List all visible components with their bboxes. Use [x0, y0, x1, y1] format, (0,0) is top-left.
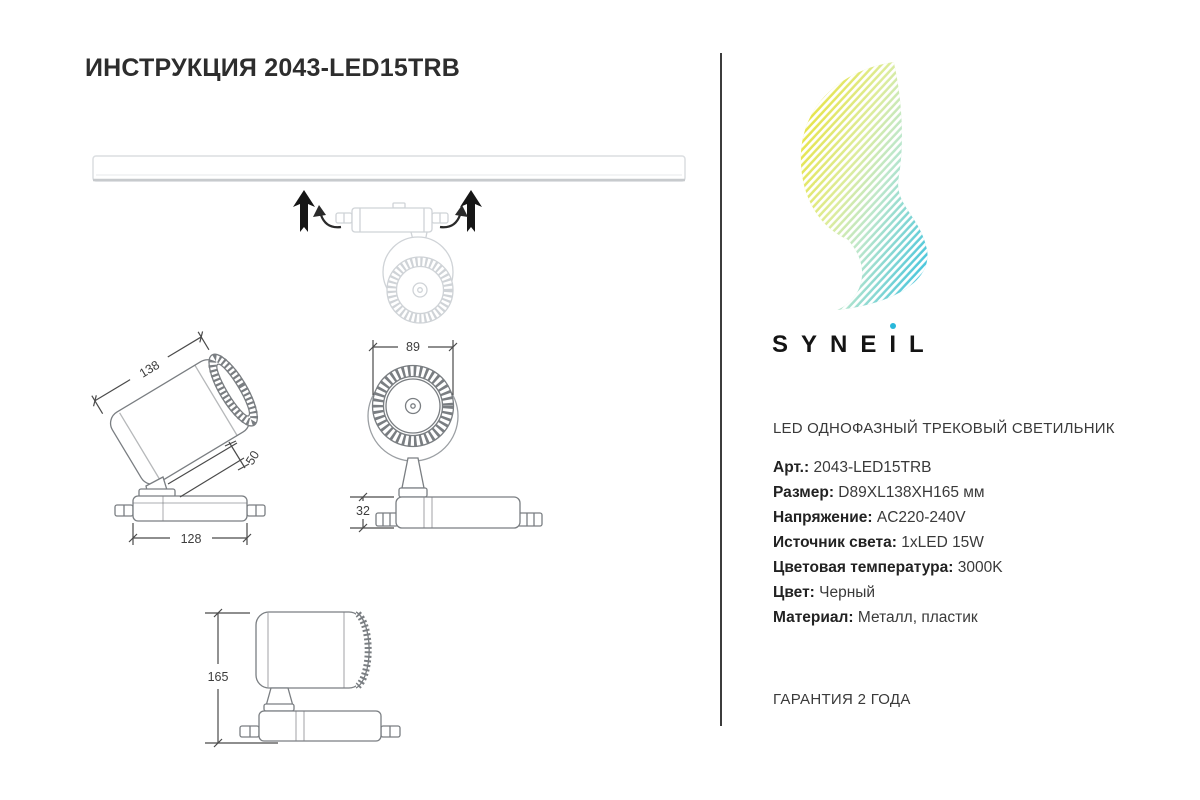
- spec-row-voltage: Напряжение: AC220-240V: [773, 505, 1003, 530]
- spec-label: Арт.:: [773, 459, 809, 476]
- dim-label-length: 138: [137, 358, 162, 381]
- side-view-upright: 165: [205, 609, 400, 747]
- dim-label-height: 165: [208, 670, 229, 684]
- dim-label-stem: 50: [243, 448, 262, 467]
- spec-list: Арт.: 2043-LED15TRB Размер: D89XL138XH16…: [773, 455, 1003, 630]
- product-type: LED ОДНОФАЗНЫЙ ТРЕКОВЫЙ СВЕТИЛЬНИК: [773, 420, 1115, 437]
- spec-value: Металл, пластик: [858, 609, 978, 626]
- spec-row-size: Размер: D89XL138XH165 мм: [773, 480, 1003, 505]
- dimension-128: 128: [129, 523, 251, 546]
- spotlight-head-top-view: [383, 232, 453, 323]
- spec-value: Черный: [819, 584, 875, 601]
- spec-row-color: Цвет: Черный: [773, 580, 1003, 605]
- wordmark-left: SYNE: [772, 331, 889, 358]
- wordmark-i-stem: I: [889, 331, 909, 358]
- install-direction-arrow-left: [293, 190, 315, 232]
- spec-value: 2043-LED15TRB: [813, 459, 931, 476]
- spec-row-color-temp: Цветовая температура: 3000K: [773, 555, 1003, 580]
- brand-wordmark: SYNEIL: [772, 331, 937, 359]
- spec-row-material: Материал: Металл, пластик: [773, 605, 1003, 630]
- dim-label-diameter: 89: [406, 340, 420, 354]
- spec-label: Размер:: [773, 484, 834, 501]
- instruction-sheet: ИНСТРУКЦИЯ 2043-LED15TRB: [0, 0, 1200, 800]
- track-rail: [93, 156, 685, 181]
- spec-row-art: Арт.: 2043-LED15TRB: [773, 455, 1003, 480]
- brand-logo-s-wave: [790, 56, 938, 318]
- spec-value: AC220-240V: [877, 509, 966, 526]
- dim-label-base-height: 32: [356, 504, 370, 518]
- spec-value: 1xLED 15W: [901, 534, 984, 551]
- wordmark-right: L: [909, 331, 937, 358]
- vertical-divider: [720, 53, 722, 726]
- track-adapter: [336, 203, 448, 232]
- spec-label: Материал:: [773, 609, 854, 626]
- spec-value: D89XL138XH165 мм: [838, 484, 984, 501]
- spec-label: Напряжение:: [773, 509, 873, 526]
- spec-label: Цвет:: [773, 584, 815, 601]
- spec-value: 3000K: [958, 559, 1003, 576]
- spec-row-light-source: Источник света: 1xLED 15W: [773, 530, 1003, 555]
- side-view-tilted: 138 50: [88, 325, 265, 546]
- front-view: 89 32: [350, 340, 542, 532]
- installation-diagram: [93, 156, 685, 323]
- warranty-note: ГАРАНТИЯ 2 ГОДА: [773, 691, 911, 708]
- dim-label-base-width: 128: [181, 532, 202, 546]
- wordmark-i: I: [889, 331, 909, 359]
- spec-label: Источник света:: [773, 534, 897, 551]
- spec-label: Цветовая температура:: [773, 559, 953, 576]
- wordmark-i-dot: [890, 323, 896, 329]
- technical-drawings: 138 50: [0, 0, 720, 800]
